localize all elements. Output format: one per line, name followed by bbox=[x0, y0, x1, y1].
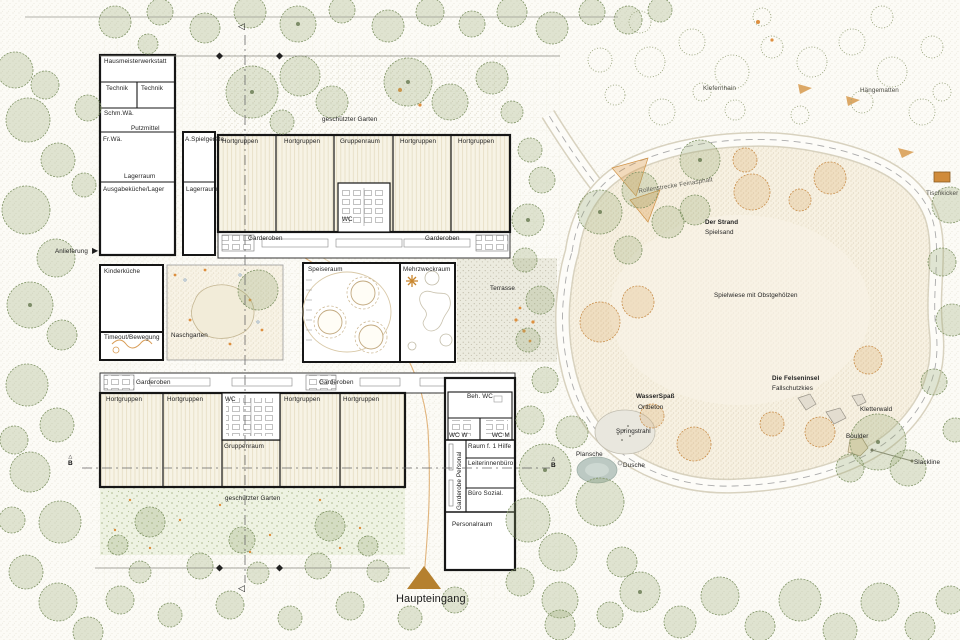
room-label-lagerraum: Lagerraum bbox=[124, 173, 155, 180]
room-label-erste-hilfe: Raum f. 1 Hilfe bbox=[468, 443, 511, 450]
section-marker-b-left: △ B bbox=[68, 455, 73, 466]
label-kiefernhain: Kiefernhain bbox=[703, 85, 736, 92]
label-geschuetzter-garten-top: geschützter Garten bbox=[322, 116, 377, 123]
label-garderoben-top-right: Garderoben bbox=[425, 235, 460, 242]
room-label-beh-wc: Beh. WC bbox=[467, 393, 493, 400]
room-label-hortgruppen-t1: Hortgruppen bbox=[222, 138, 258, 145]
label-haupteingang: Haupteingang bbox=[396, 593, 466, 605]
room-label-putzmittel: Putzmittel bbox=[131, 125, 160, 132]
section-marker-b-right-letter: B bbox=[551, 463, 556, 469]
label-terrasse: Terrasse bbox=[490, 285, 515, 292]
room-label-wc-m: WC M bbox=[492, 432, 510, 439]
room-label-fr-wae: Fr.Wä. bbox=[103, 136, 122, 143]
label-spielwiese: Spielwiese mit Obstgehölzen bbox=[714, 292, 798, 299]
section-marker-b-right: △ B bbox=[551, 457, 556, 468]
label-felseninsel: Die Felseninsel bbox=[772, 375, 819, 382]
label-spielsand: Spielsand bbox=[705, 229, 734, 236]
room-label-gruppenraum-low: Gruppenraum bbox=[224, 443, 264, 450]
room-label-ausgabekueche: Ausgabeküche/Lager bbox=[103, 186, 164, 193]
site-plan-canvas bbox=[0, 0, 960, 640]
label-boulder: Boulder bbox=[846, 433, 868, 440]
room-label-wc-low: WC bbox=[225, 396, 236, 403]
room-label-hortgruppen-b1: Hortgruppen bbox=[106, 396, 142, 403]
label-garderoben-top-left: Garderoben bbox=[248, 235, 283, 242]
label-garderoben-low-right: Garderoben bbox=[319, 379, 354, 386]
room-label-a-spielgeraete: A.Spielgeräte bbox=[185, 136, 224, 143]
room-label-speiseraum: Speiseraum bbox=[308, 266, 343, 273]
label-garderoben-low-left: Garderoben bbox=[136, 379, 171, 386]
room-label-technik-2: Technik bbox=[141, 85, 163, 92]
label-geschuetzter-garten-bottom: geschützter Garten bbox=[225, 495, 280, 502]
room-label-timeout: Timeout/Bewegung bbox=[104, 334, 160, 341]
room-label-buero-sozial: Büro Sozial. bbox=[468, 490, 503, 497]
label-haengematten: Hängematten bbox=[860, 87, 899, 94]
room-label-hortgruppen-b4: Hortgruppen bbox=[343, 396, 379, 403]
section-marker-a-top-icon: ◁ bbox=[238, 22, 245, 31]
label-springstrahl: Springstrahl bbox=[616, 428, 651, 435]
section-marker-b-left-letter: B bbox=[68, 461, 73, 467]
room-label-lagerraum-2: Lagerraum bbox=[186, 186, 217, 193]
site-plan: Hausmeisterwerkstatt Technik Technik Sch… bbox=[0, 0, 960, 640]
label-slackline: Slackline bbox=[914, 459, 940, 466]
label-ortbeton: Ortbeton bbox=[638, 404, 663, 411]
label-der-strand: Der Strand bbox=[705, 219, 738, 226]
room-label-wc-w: WC W bbox=[449, 432, 468, 439]
room-label-technik-1: Technik bbox=[106, 85, 128, 92]
room-label-leiterinnenbuero: Leiterinnenbüro bbox=[468, 460, 513, 467]
label-plansche: Plansche bbox=[576, 451, 603, 458]
room-label-hortgruppen-t3: Hortgruppen bbox=[400, 138, 436, 145]
section-marker-a-bottom-icon: ◁ bbox=[238, 584, 245, 593]
label-dusche: Dusche bbox=[623, 462, 645, 469]
label-wasserspass: WasserSpaß bbox=[636, 393, 675, 400]
room-label-wc-top: WC bbox=[342, 216, 353, 223]
label-kletterwald: Kletterwald bbox=[860, 406, 892, 413]
label-anlieferung: Anlieferung bbox=[55, 248, 88, 255]
room-label-hortgruppen-b3: Hortgruppen bbox=[284, 396, 320, 403]
room-label-mehrzweckraum: Mehrzweckraum bbox=[403, 266, 451, 273]
room-label-personalraum: Personalraum bbox=[452, 521, 492, 528]
room-label-hortgruppen-t4: Hortgruppen bbox=[458, 138, 494, 145]
room-label-gruppenraum-top: Gruppenraum bbox=[340, 138, 380, 145]
label-fallschutzkies: Fallschutzkies bbox=[772, 385, 813, 392]
room-label-hortgruppen-b2: Hortgruppen bbox=[167, 396, 203, 403]
room-label-garderobe-personal: Garderobe Personal bbox=[456, 451, 463, 510]
room-label-kinderkueche: Kinderküche bbox=[104, 268, 140, 275]
room-label-hortgruppen-t2: Hortgruppen bbox=[284, 138, 320, 145]
room-label-hausmeisterwerkstatt: Hausmeisterwerkstatt bbox=[104, 58, 167, 65]
label-tischkicker: Tischkicker bbox=[926, 190, 958, 197]
room-label-schm-wae: Schm.Wä. bbox=[104, 110, 134, 117]
label-naschgarten: Naschgarten bbox=[171, 332, 208, 339]
delivery-arrow-icon: ▶ bbox=[92, 247, 98, 254]
